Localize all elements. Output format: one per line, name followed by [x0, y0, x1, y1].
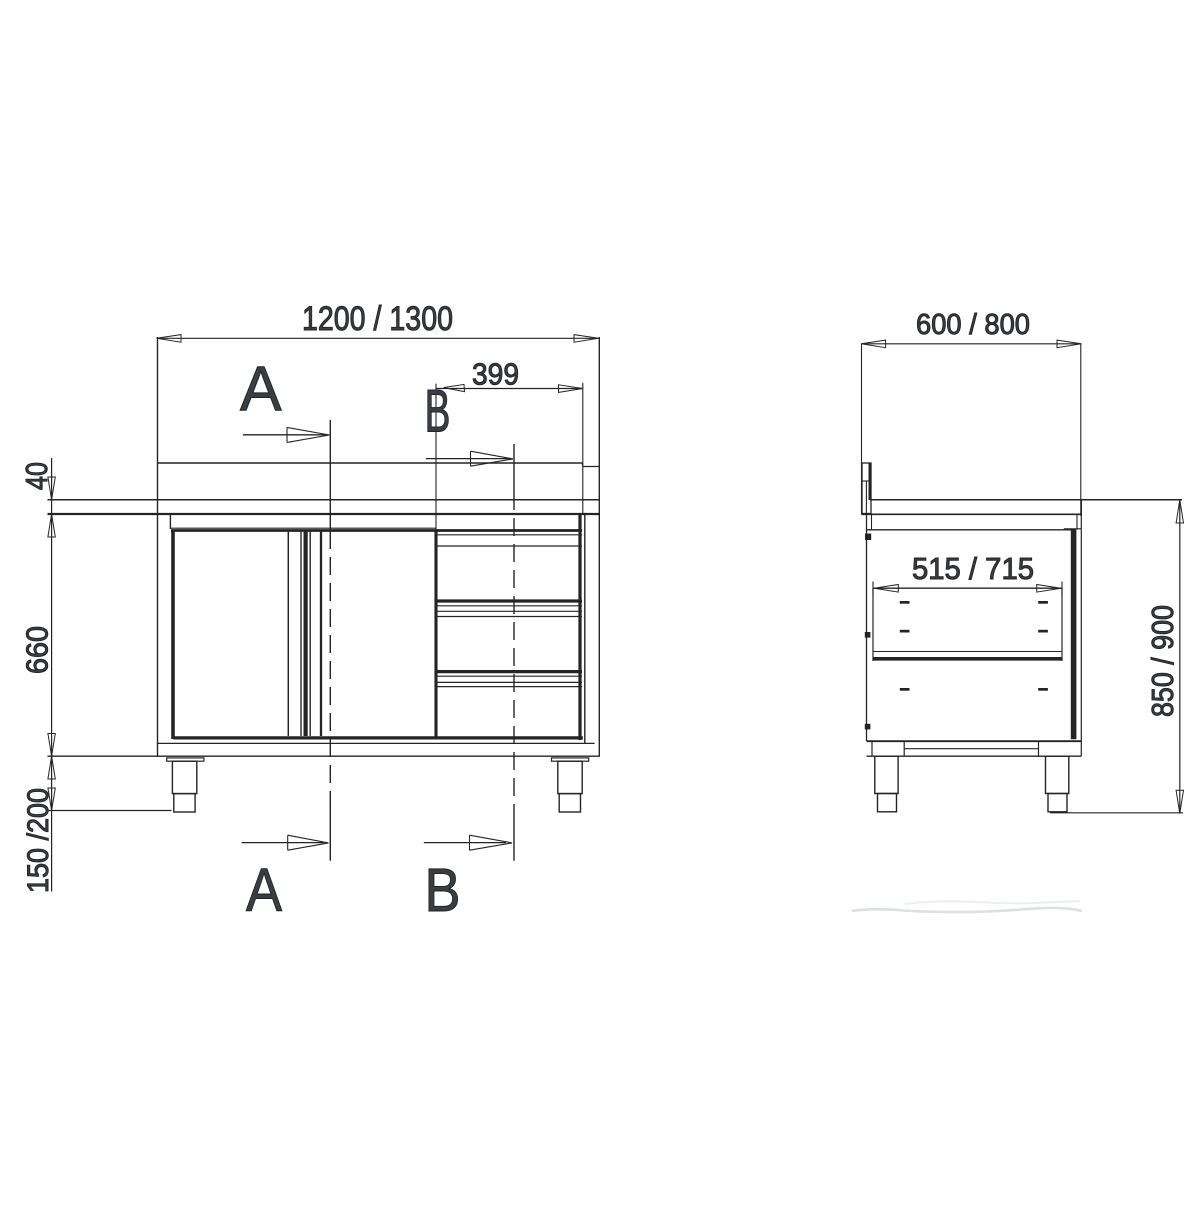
svg-text:850 / 900: 850 / 900 [1145, 605, 1180, 717]
svg-text:399: 399 [472, 357, 519, 392]
svg-text:A: A [240, 354, 282, 424]
svg-text:600 / 800: 600 / 800 [916, 309, 1030, 341]
svg-text:40: 40 [19, 462, 54, 490]
svg-text:1200 / 1300: 1200 / 1300 [302, 300, 453, 338]
svg-text:B: B [425, 856, 461, 924]
svg-text:B: B [425, 378, 451, 445]
svg-text:515 / 715: 515 / 715 [912, 551, 1034, 586]
svg-text:A: A [246, 856, 282, 924]
svg-text:150 /200: 150 /200 [22, 788, 55, 893]
svg-text:660: 660 [20, 626, 55, 674]
